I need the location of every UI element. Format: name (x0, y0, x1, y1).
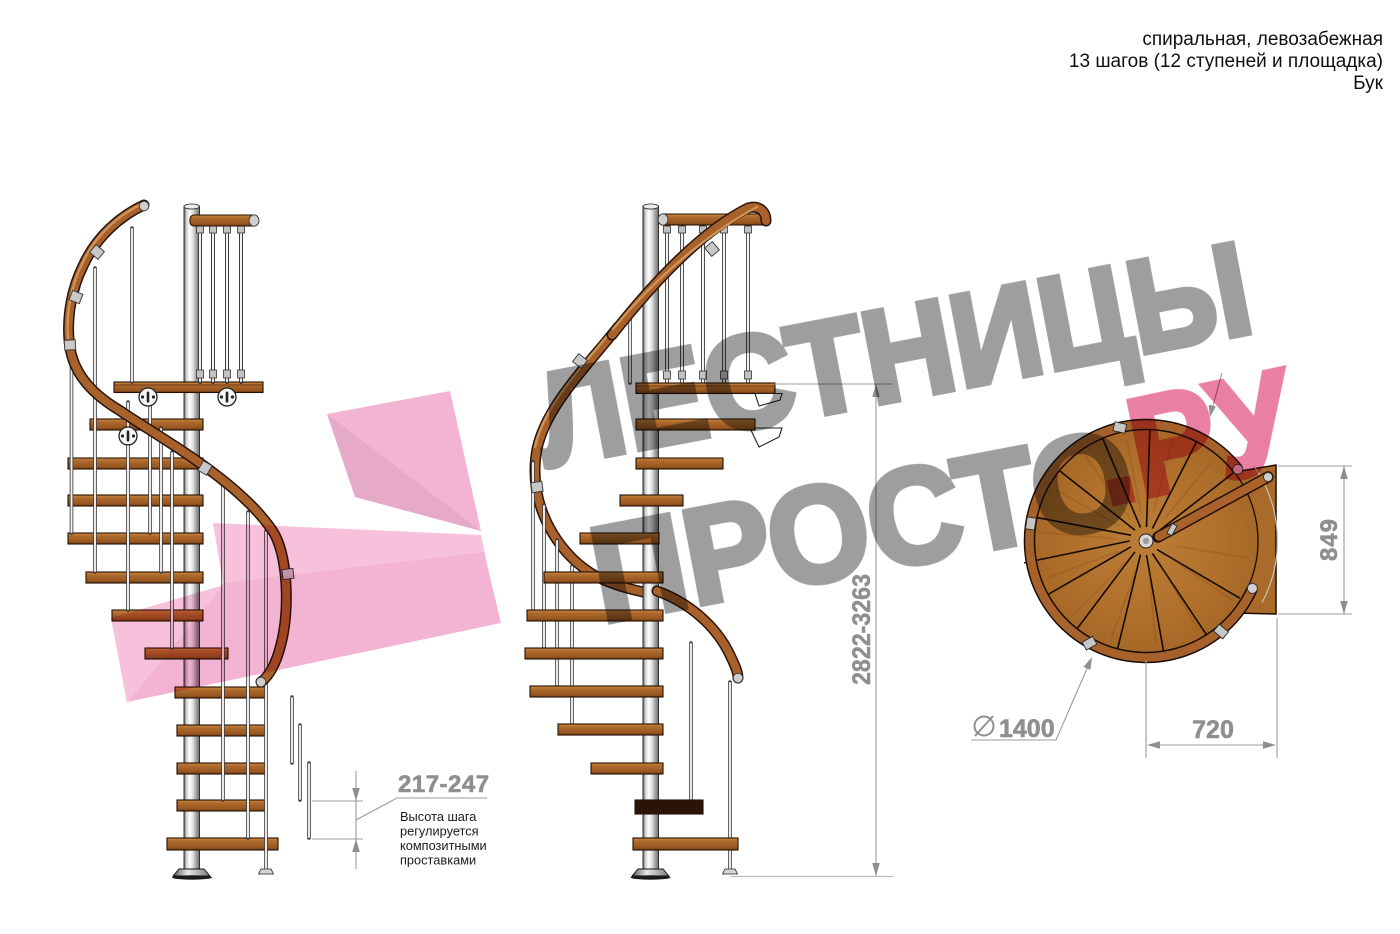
svg-text:1400: 1400 (999, 715, 1055, 743)
svg-text:Бук: Бук (1353, 73, 1384, 94)
svg-text:проставками: проставками (400, 853, 476, 868)
svg-text:13 шагов (12 ступеней и площад: 13 шагов (12 ступеней и площадка) (1069, 51, 1383, 72)
svg-text:спиральная, левозабежная: спиральная, левозабежная (1142, 29, 1383, 50)
svg-text:217-247: 217-247 (398, 771, 490, 798)
svg-text:720: 720 (1192, 716, 1234, 744)
svg-text:Высота шага: Высота шага (400, 809, 477, 824)
svg-text:849: 849 (1316, 519, 1343, 561)
svg-text:регулируется: регулируется (400, 824, 479, 839)
svg-text:композитными: композитными (400, 838, 487, 853)
